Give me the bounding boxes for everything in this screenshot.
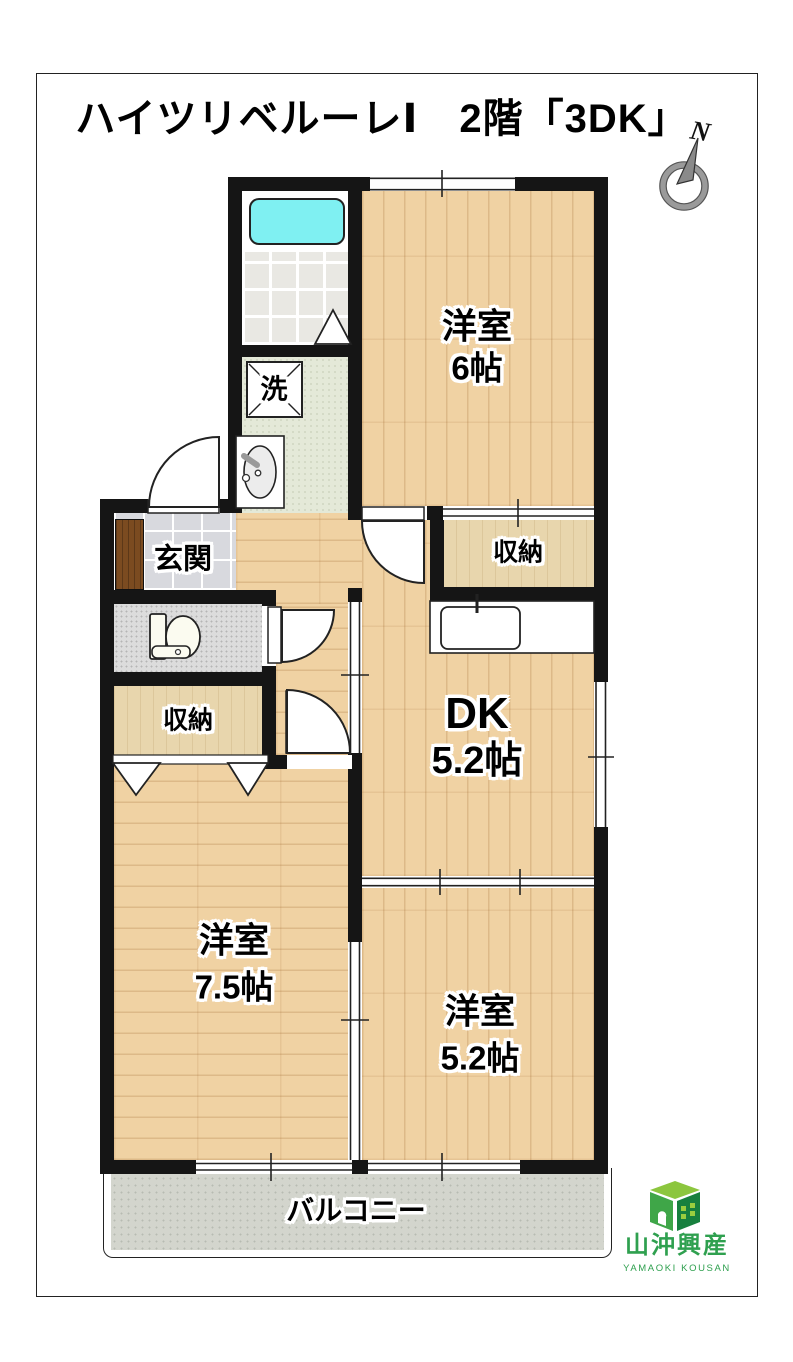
western6-floor [362, 191, 594, 506]
wall-segment [348, 753, 362, 942]
western75-door-opening [287, 755, 352, 769]
dk-sliding-door [348, 602, 362, 753]
room-label-western6-name: 洋室 [442, 310, 512, 345]
wall-segment [228, 177, 242, 513]
room-label-western6-size: 6帖 [451, 352, 502, 385]
page-title: ハイツリベルーレⅠ 2階「3DK」 [75, 86, 688, 144]
room-label-western52-size: 5.2帖 [441, 1042, 520, 1075]
corridor-floor [276, 604, 348, 755]
room-label-balcony: バルコニー [286, 1197, 425, 1225]
partition-sliding-door [348, 942, 362, 1160]
wall-segment [242, 345, 348, 357]
closet-upper-sliding-door [443, 506, 594, 520]
western75-floor [114, 763, 348, 1160]
bathtub-area [242, 191, 348, 252]
room-label-western75-name: 洋室 [199, 924, 269, 959]
wall-segment [114, 590, 276, 604]
room-label-western75-size: 7.5帖 [195, 971, 274, 1004]
room-label-laundry: 洗 [261, 377, 288, 404]
floor-plan-page: ハイツリベルーレⅠ 2階「3DK」 [0, 0, 793, 1362]
washroom-floor [242, 357, 348, 513]
balcony-window-right [368, 1160, 520, 1174]
toilet-door-opening [262, 606, 276, 666]
western6-door-opening [362, 506, 427, 520]
wall-segment [114, 672, 262, 686]
bathroom-floor [242, 252, 348, 345]
room-label-western52-name: 洋室 [445, 995, 515, 1030]
wall-segment [430, 520, 444, 587]
wall-segment [520, 1160, 608, 1174]
toilet-floor [114, 604, 262, 672]
wall-segment [348, 177, 362, 510]
wall-segment [430, 587, 608, 601]
entrance-door-opening [148, 499, 220, 513]
window-dk-right [594, 682, 608, 827]
room-label-dk-name: DK [445, 692, 509, 736]
room-label-dk-size: 5.2帖 [432, 742, 523, 780]
wall-segment [348, 588, 362, 602]
wall-segment [100, 499, 114, 1174]
wall-segment [100, 1160, 196, 1174]
balcony-window-left [196, 1160, 352, 1174]
room-label-genkan: 玄関 [154, 546, 212, 575]
wall-segment [594, 177, 608, 1174]
room-label-closet-lower: 収納 [163, 709, 213, 734]
room-label-closet-upper: 収納 [493, 541, 543, 566]
shoe-cabinet [115, 519, 144, 590]
window-western6-top [370, 177, 515, 191]
dk-western52-partition [362, 876, 594, 888]
